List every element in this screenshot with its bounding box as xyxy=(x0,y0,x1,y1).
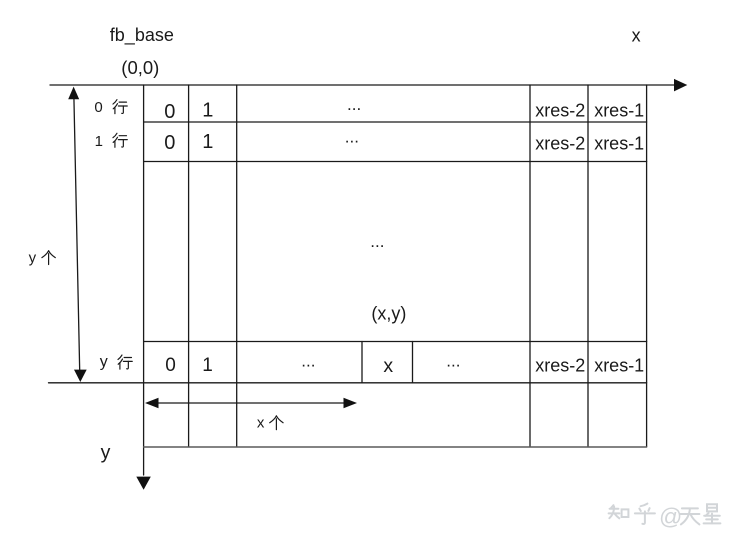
svg-text:y: y xyxy=(29,250,37,267)
svg-text:@: @ xyxy=(659,504,682,530)
svg-text:1: 1 xyxy=(202,131,213,153)
svg-text:...: ... xyxy=(345,127,359,146)
svg-text:(0,0): (0,0) xyxy=(121,57,159,78)
svg-text:0: 0 xyxy=(164,101,175,123)
svg-text:x: x xyxy=(632,25,641,45)
svg-text:...: ... xyxy=(301,351,315,370)
svg-text:...: ... xyxy=(347,95,361,114)
svg-text:(x,y): (x,y) xyxy=(371,304,406,324)
svg-text:1: 1 xyxy=(95,133,103,150)
svg-text:xres-1: xres-1 xyxy=(594,133,644,153)
svg-text:xres-2: xres-2 xyxy=(535,100,585,120)
svg-text:y: y xyxy=(100,354,108,371)
svg-text:x: x xyxy=(257,415,265,432)
svg-text:xres-1: xres-1 xyxy=(594,100,644,120)
svg-text:0: 0 xyxy=(165,355,176,376)
svg-text:xres-1: xres-1 xyxy=(594,356,644,376)
svg-text:fb_base: fb_base xyxy=(110,25,174,46)
svg-text:0: 0 xyxy=(94,99,102,116)
svg-text:1: 1 xyxy=(202,100,213,122)
svg-text:0: 0 xyxy=(164,132,175,154)
svg-text:x: x xyxy=(383,355,393,377)
svg-text:y: y xyxy=(101,441,111,463)
svg-text:xres-2: xres-2 xyxy=(535,356,585,376)
svg-text:...: ... xyxy=(370,232,384,251)
svg-text:1: 1 xyxy=(202,355,213,376)
svg-text:...: ... xyxy=(446,351,460,370)
svg-text:xres-2: xres-2 xyxy=(535,133,585,153)
